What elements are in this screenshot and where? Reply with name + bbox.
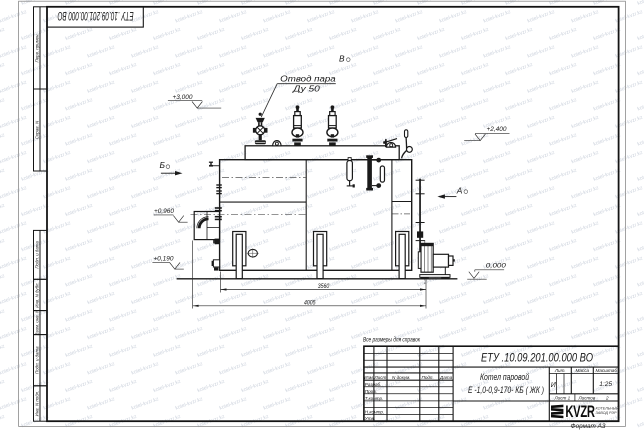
- svg-text:В: В: [339, 53, 345, 63]
- svg-text:Справ. N: Справ. N: [34, 120, 39, 139]
- svg-text:Подп. и дата: Подп. и дата: [34, 241, 39, 269]
- svg-text:2: 2: [605, 396, 609, 401]
- svg-text:Масса: Масса: [576, 368, 590, 373]
- svg-text:Лит.: Лит.: [554, 368, 566, 373]
- svg-text:Масштаб: Масштаб: [595, 368, 617, 373]
- svg-text:4005: 4005: [304, 299, 316, 306]
- svg-text:Ду 50: Ду 50: [292, 84, 320, 94]
- svg-text:Разраб.: Разраб.: [365, 382, 382, 387]
- svg-text:Подп.: Подп.: [422, 375, 434, 380]
- svg-text:КОТЕЛЬНЫЙ: КОТЕЛЬНЫЙ: [596, 406, 620, 410]
- svg-text:N докум.: N докум.: [392, 375, 411, 380]
- svg-text:Т.контр.: Т.контр.: [365, 396, 384, 401]
- svg-text:Изм.: Изм.: [364, 375, 374, 380]
- svg-text:Б: Б: [160, 160, 166, 170]
- svg-text:Лист: Лист: [374, 375, 387, 380]
- svg-text:3560: 3560: [318, 283, 330, 290]
- svg-text:+0,960: +0,960: [154, 208, 175, 215]
- svg-text:ЕТУ .10.09.201.00.000 ВО: ЕТУ .10.09.201.00.000 ВО: [481, 350, 593, 364]
- svg-text:0,000: 0,000: [486, 262, 507, 269]
- svg-text:Дата: Дата: [439, 375, 453, 380]
- svg-text:Листов: Листов: [578, 396, 596, 401]
- svg-text:Формат А3: Формат А3: [571, 423, 606, 430]
- svg-text:ЕТУ .10.09.201.00.000 ВО: ЕТУ .10.09.201.00.000 ВО: [58, 9, 134, 23]
- svg-text:KVZR: KVZR: [565, 403, 595, 422]
- svg-text:+2,400: +2,400: [487, 126, 508, 133]
- svg-text:1:25: 1:25: [599, 381, 612, 388]
- svg-text:Все размеры для справок: Все размеры для справок: [363, 335, 421, 343]
- svg-text:Пров.: Пров.: [365, 389, 377, 394]
- svg-text:Утв.: Утв.: [365, 416, 375, 421]
- svg-text:ЗАВОД РЭР: ЗАВОД РЭР: [596, 411, 617, 415]
- svg-text:Котел паровой: Котел паровой: [480, 371, 530, 382]
- svg-text:Подп. и дата: Подп. и дата: [34, 346, 39, 374]
- svg-text:Н.контр.: Н.контр.: [365, 409, 384, 414]
- svg-text:Инв. N подл.: Инв. N подл.: [34, 391, 39, 417]
- svg-text:+0,190: +0,190: [154, 256, 175, 263]
- svg-text:Лист 1: Лист 1: [554, 396, 571, 401]
- svg-text:Отвод пара: Отвод пара: [280, 74, 336, 84]
- svg-text:Перв. примен.: Перв. примен.: [34, 33, 39, 62]
- svg-text:Е -1,0-0,9-170- КБ ( ЖК ): Е -1,0-0,9-170- КБ ( ЖК ): [468, 385, 544, 395]
- svg-text:Инв. N дубл.: Инв. N дубл.: [34, 282, 39, 307]
- svg-text:+3,000: +3,000: [173, 94, 194, 101]
- svg-text:А: А: [456, 185, 463, 195]
- svg-text:Взам. инв. N: Взам. инв. N: [34, 309, 39, 335]
